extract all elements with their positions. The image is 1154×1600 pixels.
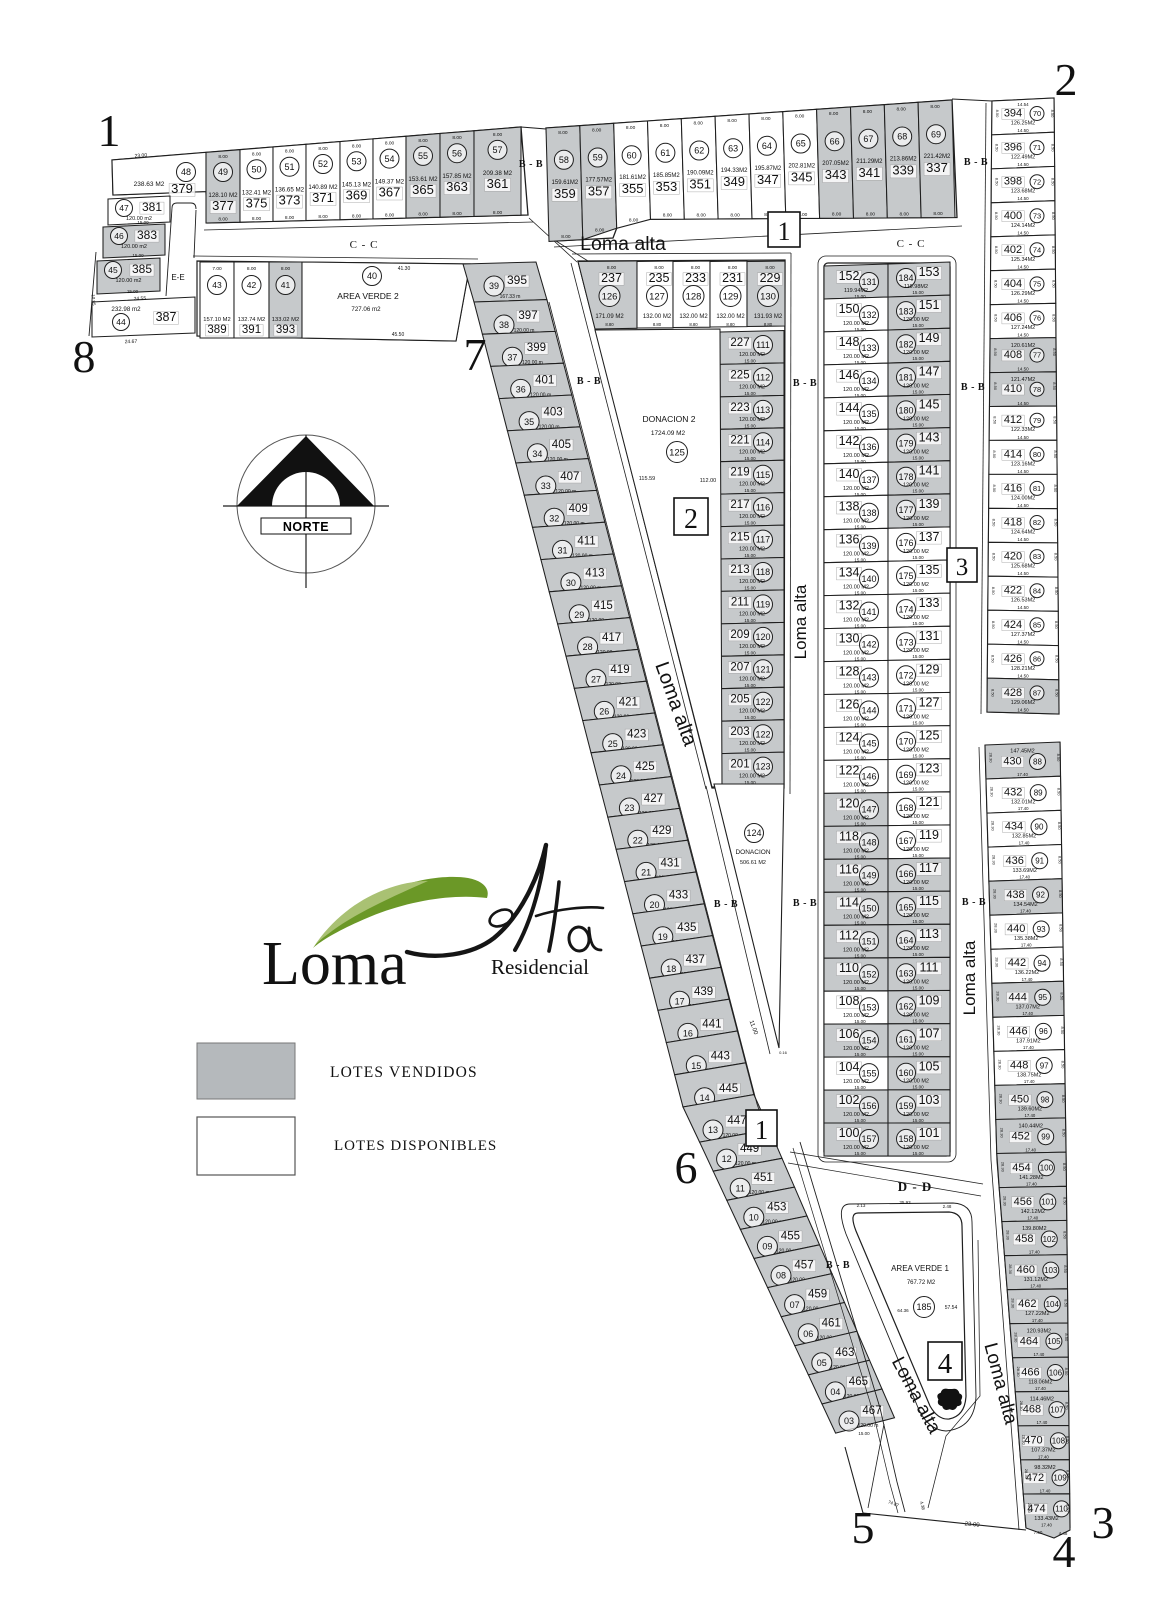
svg-text:17.40: 17.40 xyxy=(1037,1420,1048,1425)
svg-text:120.00 m2: 120.00 m2 xyxy=(116,278,142,284)
svg-text:8.00: 8.00 xyxy=(247,266,257,272)
svg-text:15.00: 15.00 xyxy=(912,1018,924,1023)
svg-text:8.50: 8.50 xyxy=(992,450,997,459)
svg-text:8.00: 8.00 xyxy=(897,107,907,113)
svg-text:178: 178 xyxy=(898,472,913,482)
svg-text:120.93M2: 120.93M2 xyxy=(1027,1328,1051,1334)
svg-text:B - B: B - B xyxy=(793,378,817,389)
svg-text:8.00: 8.00 xyxy=(252,151,262,157)
svg-text:158: 158 xyxy=(898,1134,913,1144)
svg-text:235: 235 xyxy=(649,271,670,285)
svg-text:28.30: 28.30 xyxy=(1000,1162,1005,1173)
svg-text:135.38M2: 135.38M2 xyxy=(1014,936,1038,942)
svg-text:125: 125 xyxy=(919,729,940,743)
svg-text:8.00: 8.00 xyxy=(561,234,571,240)
svg-text:3: 3 xyxy=(1092,1497,1115,1548)
svg-text:175: 175 xyxy=(898,571,913,581)
svg-text:14.50: 14.50 xyxy=(1017,571,1029,576)
svg-text:15: 15 xyxy=(691,1061,701,1071)
svg-text:114.46M2: 114.46M2 xyxy=(1030,1397,1054,1403)
svg-text:118: 118 xyxy=(756,567,770,577)
svg-text:118: 118 xyxy=(839,829,859,843)
svg-text:103: 103 xyxy=(919,1093,940,1107)
svg-text:17.40: 17.40 xyxy=(1032,1318,1043,1323)
svg-text:C - C: C - C xyxy=(897,238,926,250)
svg-text:232.98 m2: 232.98 m2 xyxy=(111,306,141,313)
svg-text:428: 428 xyxy=(1004,687,1022,699)
svg-text:14.50: 14.50 xyxy=(1017,673,1029,678)
svg-text:DONACION 2: DONACION 2 xyxy=(643,414,696,424)
svg-text:122: 122 xyxy=(755,729,770,739)
svg-text:14.50: 14.50 xyxy=(1017,367,1029,372)
svg-text:23: 23 xyxy=(624,803,634,813)
svg-text:14.50: 14.50 xyxy=(1017,537,1029,542)
svg-text:395: 395 xyxy=(507,273,527,287)
svg-text:75: 75 xyxy=(1033,280,1041,289)
svg-text:50: 50 xyxy=(251,165,261,175)
svg-text:107: 107 xyxy=(1050,1405,1064,1414)
svg-text:8.50: 8.50 xyxy=(1058,890,1063,899)
svg-text:66: 66 xyxy=(830,136,840,146)
svg-text:108: 108 xyxy=(839,994,860,1008)
svg-text:8.00: 8.00 xyxy=(866,212,876,218)
svg-text:15.00: 15.00 xyxy=(744,618,756,623)
svg-text:167: 167 xyxy=(898,836,913,846)
svg-text:409: 409 xyxy=(569,503,588,515)
svg-text:28.30: 28.30 xyxy=(1011,1298,1016,1309)
svg-text:8.50: 8.50 xyxy=(1060,992,1065,1001)
svg-text:120.00 M2: 120.00 M2 xyxy=(739,384,765,390)
svg-text:8.00: 8.00 xyxy=(730,212,740,218)
svg-text:87: 87 xyxy=(1033,689,1041,698)
svg-text:401: 401 xyxy=(535,374,554,386)
svg-text:15.00: 15.00 xyxy=(854,1118,866,1123)
svg-text:8.00: 8.00 xyxy=(629,217,639,223)
svg-text:60: 60 xyxy=(627,150,637,160)
svg-text:8.00: 8.00 xyxy=(385,213,395,219)
svg-text:148: 148 xyxy=(839,335,860,349)
svg-text:13: 13 xyxy=(708,1125,718,1135)
svg-text:133.02 M2: 133.02 M2 xyxy=(272,317,299,323)
svg-text:101: 101 xyxy=(919,1126,940,1140)
svg-text:15.00: 15.00 xyxy=(912,886,924,891)
svg-text:8.00: 8.00 xyxy=(218,154,228,160)
svg-text:367: 367 xyxy=(379,185,401,200)
svg-text:453: 453 xyxy=(767,1201,786,1213)
svg-text:148: 148 xyxy=(861,838,876,848)
svg-text:8.00: 8.00 xyxy=(452,211,462,217)
svg-text:460: 460 xyxy=(1017,1264,1035,1276)
svg-text:349: 349 xyxy=(723,174,745,189)
svg-text:14: 14 xyxy=(700,1093,710,1103)
svg-text:8.50: 8.50 xyxy=(993,314,998,323)
svg-text:24: 24 xyxy=(616,771,626,781)
svg-text:155: 155 xyxy=(861,1068,876,1078)
svg-text:28.30: 28.30 xyxy=(1024,1469,1029,1480)
svg-text:133.69M2: 133.69M2 xyxy=(1012,868,1036,874)
svg-text:152: 152 xyxy=(861,969,876,979)
svg-text:14.50: 14.50 xyxy=(1017,503,1029,508)
svg-text:14.50: 14.50 xyxy=(1017,299,1029,304)
svg-text:116: 116 xyxy=(839,862,859,876)
svg-text:448: 448 xyxy=(1010,1060,1028,1072)
svg-text:398: 398 xyxy=(1004,176,1022,188)
svg-text:361: 361 xyxy=(487,176,509,191)
svg-text:17.40: 17.40 xyxy=(1040,1488,1051,1493)
svg-text:8.00: 8.00 xyxy=(452,135,462,141)
svg-text:24.55: 24.55 xyxy=(134,296,147,303)
svg-text:144: 144 xyxy=(861,706,876,716)
svg-text:24.67: 24.67 xyxy=(125,339,138,345)
svg-text:15.00: 15.00 xyxy=(912,820,924,825)
svg-text:83: 83 xyxy=(1033,552,1041,561)
svg-text:147.45M2: 147.45M2 xyxy=(1010,749,1034,755)
svg-text:74: 74 xyxy=(1033,246,1041,255)
svg-text:51: 51 xyxy=(284,162,294,172)
svg-text:15.00: 15.00 xyxy=(912,588,924,593)
svg-text:2.13: 2.13 xyxy=(857,1203,866,1208)
svg-text:B - B: B - B xyxy=(826,1260,850,1271)
svg-text:17.40: 17.40 xyxy=(1019,874,1030,879)
svg-text:113: 113 xyxy=(919,927,939,941)
svg-text:82: 82 xyxy=(1033,518,1041,527)
svg-text:104: 104 xyxy=(839,1060,860,1074)
svg-text:164: 164 xyxy=(898,935,913,945)
svg-text:E-E: E-E xyxy=(171,273,184,282)
svg-text:110: 110 xyxy=(839,961,859,975)
svg-text:62: 62 xyxy=(694,146,704,156)
svg-text:100: 100 xyxy=(839,1126,860,1140)
svg-text:102: 102 xyxy=(839,1093,860,1107)
svg-text:15.00: 15.00 xyxy=(912,919,924,924)
svg-text:14.50: 14.50 xyxy=(1017,639,1029,644)
svg-text:15.00: 15.00 xyxy=(132,253,144,258)
svg-text:8.50: 8.50 xyxy=(1061,1095,1066,1104)
svg-text:414: 414 xyxy=(1004,448,1022,460)
svg-text:73: 73 xyxy=(1033,211,1041,220)
svg-text:7.60: 7.60 xyxy=(1034,1530,1043,1535)
svg-text:28.30: 28.30 xyxy=(1027,1503,1032,1514)
svg-text:176: 176 xyxy=(898,538,913,548)
svg-text:15.00: 15.00 xyxy=(858,1431,870,1436)
svg-text:B - B: B - B xyxy=(714,899,738,910)
svg-text:15.00: 15.00 xyxy=(912,853,924,858)
svg-text:425: 425 xyxy=(635,761,654,773)
svg-text:341: 341 xyxy=(859,165,881,180)
svg-text:132.00 M2: 132.00 M2 xyxy=(643,314,672,320)
svg-text:64: 64 xyxy=(762,141,772,151)
svg-text:4: 4 xyxy=(1053,1526,1076,1577)
svg-text:10: 10 xyxy=(749,1213,759,1223)
svg-text:99: 99 xyxy=(1041,1133,1050,1142)
svg-text:120.00 M2: 120.00 M2 xyxy=(739,611,765,617)
svg-text:1: 1 xyxy=(755,1115,769,1145)
svg-text:38: 38 xyxy=(499,320,509,330)
svg-text:379: 379 xyxy=(171,181,193,196)
svg-text:55: 55 xyxy=(418,151,428,161)
svg-text:105: 105 xyxy=(1047,1337,1061,1346)
svg-text:0.16: 0.16 xyxy=(779,1050,788,1055)
svg-text:128.21M2: 128.21M2 xyxy=(1011,666,1035,672)
svg-text:20: 20 xyxy=(649,900,659,910)
svg-text:431: 431 xyxy=(661,857,680,869)
svg-text:383: 383 xyxy=(137,228,157,242)
svg-text:136.22M2: 136.22M2 xyxy=(1015,970,1039,976)
svg-text:135: 135 xyxy=(919,563,940,577)
svg-text:441: 441 xyxy=(702,1018,721,1030)
svg-text:456: 456 xyxy=(1014,1196,1032,1208)
svg-text:8.50: 8.50 xyxy=(1052,348,1057,357)
svg-text:8.50: 8.50 xyxy=(1052,382,1057,391)
svg-text:35: 35 xyxy=(524,417,534,427)
svg-text:402: 402 xyxy=(1004,244,1022,256)
svg-text:08: 08 xyxy=(776,1271,786,1281)
svg-text:49: 49 xyxy=(218,167,228,177)
svg-text:15.00: 15.00 xyxy=(744,553,756,558)
svg-text:14.50: 14.50 xyxy=(1017,605,1029,610)
svg-text:359: 359 xyxy=(554,186,576,201)
svg-text:385: 385 xyxy=(132,262,152,276)
svg-text:142.12M2: 142.12M2 xyxy=(1021,1209,1045,1215)
svg-text:100: 100 xyxy=(1040,1164,1054,1173)
svg-text:2.48: 2.48 xyxy=(943,1204,952,1209)
svg-text:418: 418 xyxy=(1004,517,1022,529)
svg-text:C - C: C - C xyxy=(350,239,379,251)
svg-text:14.50: 14.50 xyxy=(1017,162,1029,167)
svg-text:8.00: 8.00 xyxy=(352,213,362,219)
svg-text:59: 59 xyxy=(593,153,603,163)
svg-text:127.24M2: 127.24M2 xyxy=(1011,325,1035,331)
svg-text:8.50: 8.50 xyxy=(1051,280,1056,289)
svg-text:461: 461 xyxy=(822,1318,841,1330)
svg-text:71: 71 xyxy=(1033,143,1041,152)
svg-text:416: 416 xyxy=(1004,482,1022,494)
svg-text:65: 65 xyxy=(796,139,806,149)
svg-text:445: 445 xyxy=(719,1083,738,1095)
svg-text:23.00: 23.00 xyxy=(134,152,147,159)
svg-text:15.00: 15.00 xyxy=(912,290,924,295)
svg-text:15.00: 15.00 xyxy=(744,359,756,364)
svg-text:123.16M2: 123.16M2 xyxy=(1011,461,1035,467)
svg-text:28.30: 28.30 xyxy=(998,1094,1003,1105)
svg-text:72: 72 xyxy=(1033,177,1041,186)
svg-text:14.50: 14.50 xyxy=(1017,469,1029,474)
svg-text:67: 67 xyxy=(863,134,873,144)
svg-text:8.50: 8.50 xyxy=(1057,822,1062,831)
svg-text:153: 153 xyxy=(919,265,940,279)
svg-text:15.00: 15.00 xyxy=(744,683,756,688)
svg-text:15.00: 15.00 xyxy=(744,423,756,428)
svg-text:8.00: 8.00 xyxy=(832,212,842,218)
svg-text:34: 34 xyxy=(532,449,542,459)
svg-text:28.30: 28.30 xyxy=(1013,1332,1018,1343)
svg-text:B - B: B - B xyxy=(961,382,985,393)
svg-text:17.40: 17.40 xyxy=(1038,1454,1049,1459)
svg-text:15.00: 15.00 xyxy=(912,1151,924,1156)
svg-text:107.37M2: 107.37M2 xyxy=(1031,1448,1055,1454)
svg-text:8.00: 8.00 xyxy=(493,132,503,138)
svg-text:8.50: 8.50 xyxy=(1065,1436,1070,1445)
svg-text:373: 373 xyxy=(279,193,301,208)
svg-text:132.74 M2: 132.74 M2 xyxy=(238,317,265,323)
svg-text:15.00: 15.00 xyxy=(127,289,139,294)
svg-text:139: 139 xyxy=(919,497,940,511)
svg-text:8.00: 8.00 xyxy=(626,125,636,131)
svg-text:132.01M2: 132.01M2 xyxy=(1011,800,1035,806)
svg-text:466: 466 xyxy=(1021,1367,1039,1379)
svg-text:727.06 m2: 727.06 m2 xyxy=(351,306,381,313)
svg-text:15.00: 15.00 xyxy=(744,521,756,526)
svg-text:399: 399 xyxy=(527,342,546,354)
svg-text:140.44M2: 140.44M2 xyxy=(1018,1124,1042,1130)
svg-text:15.00: 15.00 xyxy=(912,1085,924,1090)
svg-text:126: 126 xyxy=(839,698,860,712)
svg-text:145: 145 xyxy=(861,739,876,749)
svg-text:8.50: 8.50 xyxy=(1050,144,1055,153)
svg-text:17.40: 17.40 xyxy=(1022,977,1033,982)
svg-text:157.10 M2: 157.10 M2 xyxy=(203,317,230,323)
svg-text:343: 343 xyxy=(825,167,847,182)
svg-text:15.00: 15.00 xyxy=(744,715,756,720)
svg-text:8.00: 8.00 xyxy=(900,211,910,217)
svg-text:131.12M2: 131.12M2 xyxy=(1024,1277,1048,1283)
svg-text:131: 131 xyxy=(919,629,940,643)
svg-text:39: 39 xyxy=(489,281,499,291)
svg-text:120.00 M2: 120.00 M2 xyxy=(739,644,765,650)
svg-text:B - B: B - B xyxy=(962,897,986,908)
svg-text:17.40: 17.40 xyxy=(1035,1386,1046,1391)
svg-text:DONACION: DONACION xyxy=(735,849,770,856)
svg-text:Residencial: Residencial xyxy=(491,955,589,979)
svg-text:93: 93 xyxy=(1037,925,1046,934)
svg-text:131.93 M2: 131.93 M2 xyxy=(754,314,783,320)
svg-text:115: 115 xyxy=(756,470,770,480)
svg-text:347: 347 xyxy=(757,172,779,187)
svg-text:422: 422 xyxy=(1004,585,1022,597)
svg-text:44: 44 xyxy=(116,317,126,327)
svg-text:152: 152 xyxy=(839,269,860,283)
svg-text:109: 109 xyxy=(919,993,940,1007)
svg-text:15.00: 15.00 xyxy=(912,787,924,792)
svg-text:76: 76 xyxy=(1033,314,1041,323)
svg-text:8.50: 8.50 xyxy=(1057,788,1062,797)
svg-text:14.50: 14.50 xyxy=(1017,196,1029,201)
svg-text:3: 3 xyxy=(956,554,969,581)
svg-text:139.60M2: 139.60M2 xyxy=(1018,1107,1042,1113)
svg-text:182: 182 xyxy=(898,339,913,349)
svg-text:185: 185 xyxy=(916,1302,931,1312)
svg-text:68: 68 xyxy=(897,132,907,142)
svg-text:LOTES DISPONIBLES: LOTES DISPONIBLES xyxy=(334,1138,497,1154)
svg-text:98.32M2: 98.32M2 xyxy=(1034,1465,1055,1471)
svg-text:412: 412 xyxy=(1004,414,1022,426)
svg-text:123.68M2: 123.68M2 xyxy=(1011,189,1035,195)
svg-text:147: 147 xyxy=(919,364,940,378)
svg-text:355: 355 xyxy=(622,181,644,196)
svg-text:8.00: 8.00 xyxy=(727,118,737,124)
svg-text:406: 406 xyxy=(1004,312,1022,324)
svg-text:28.30: 28.30 xyxy=(992,855,997,866)
svg-text:58: 58 xyxy=(559,155,569,165)
svg-text:8.50: 8.50 xyxy=(1062,1129,1067,1138)
svg-text:107: 107 xyxy=(919,1027,940,1041)
svg-text:8.80: 8.80 xyxy=(764,322,773,327)
svg-text:8.00: 8.00 xyxy=(694,121,704,127)
svg-text:122: 122 xyxy=(755,697,770,707)
svg-text:120.00 M2: 120.00 M2 xyxy=(739,352,765,358)
svg-text:15.00: 15.00 xyxy=(912,456,924,461)
svg-text:173: 173 xyxy=(898,637,913,647)
svg-text:43: 43 xyxy=(212,280,222,290)
svg-text:8.50: 8.50 xyxy=(991,553,996,562)
svg-text:28.30: 28.30 xyxy=(990,787,995,798)
svg-text:94: 94 xyxy=(1038,959,1047,968)
svg-text:8.00: 8.00 xyxy=(761,116,771,122)
svg-text:15.00: 15.00 xyxy=(912,754,924,759)
svg-text:8.80: 8.80 xyxy=(689,322,698,327)
svg-text:231: 231 xyxy=(722,271,743,285)
svg-text:126.25M2: 126.25M2 xyxy=(1011,121,1035,127)
svg-text:139.80M2: 139.80M2 xyxy=(1022,1226,1046,1232)
svg-text:17.40: 17.40 xyxy=(1029,1250,1040,1255)
svg-text:122.33M2: 122.33M2 xyxy=(1011,427,1035,433)
svg-text:114: 114 xyxy=(839,895,859,909)
svg-text:06: 06 xyxy=(803,1329,813,1339)
svg-text:116: 116 xyxy=(756,502,770,512)
svg-text:375: 375 xyxy=(246,195,268,210)
svg-text:120.00 m2: 120.00 m2 xyxy=(121,244,147,250)
svg-text:84: 84 xyxy=(1033,586,1041,595)
svg-text:28.30: 28.30 xyxy=(992,889,997,900)
svg-text:41.30: 41.30 xyxy=(398,266,411,272)
svg-text:159: 159 xyxy=(898,1101,913,1111)
svg-text:28.30: 28.30 xyxy=(1022,1435,1027,1446)
svg-text:454: 454 xyxy=(1012,1162,1030,1174)
svg-text:120.00 M2: 120.00 M2 xyxy=(739,482,765,488)
svg-text:64.36: 64.36 xyxy=(897,1308,909,1313)
svg-text:119: 119 xyxy=(919,828,939,842)
svg-text:8.00: 8.00 xyxy=(663,213,673,219)
svg-text:436: 436 xyxy=(1006,855,1024,867)
svg-text:120.00 M2: 120.00 M2 xyxy=(739,547,765,553)
svg-text:423: 423 xyxy=(627,729,646,741)
svg-text:37: 37 xyxy=(507,352,517,362)
svg-text:137: 137 xyxy=(919,530,940,544)
svg-text:63: 63 xyxy=(728,143,738,153)
svg-text:69: 69 xyxy=(931,129,941,139)
svg-text:120.00 M2: 120.00 M2 xyxy=(739,449,765,455)
svg-text:149: 149 xyxy=(919,331,940,345)
svg-text:128: 128 xyxy=(839,665,860,679)
svg-text:427: 427 xyxy=(644,793,663,805)
svg-text:120.00 M2: 120.00 M2 xyxy=(739,417,765,423)
svg-text:134: 134 xyxy=(861,376,876,386)
svg-text:219: 219 xyxy=(730,467,749,479)
svg-text:B - B: B - B xyxy=(793,898,817,909)
svg-text:118.06M2: 118.06M2 xyxy=(1028,1380,1052,1386)
svg-text:30: 30 xyxy=(566,578,576,588)
svg-text:404: 404 xyxy=(1004,278,1022,290)
svg-text:137.91M2: 137.91M2 xyxy=(1016,1038,1040,1044)
svg-text:365: 365 xyxy=(412,182,434,197)
svg-text:464: 464 xyxy=(1020,1335,1038,1347)
svg-text:112: 112 xyxy=(839,928,859,942)
svg-text:21: 21 xyxy=(641,868,651,878)
svg-text:133.43M2: 133.43M2 xyxy=(1034,1516,1058,1522)
svg-text:86: 86 xyxy=(1033,655,1041,664)
svg-text:767.72 M2: 767.72 M2 xyxy=(907,1280,936,1286)
svg-text:201: 201 xyxy=(730,759,749,771)
